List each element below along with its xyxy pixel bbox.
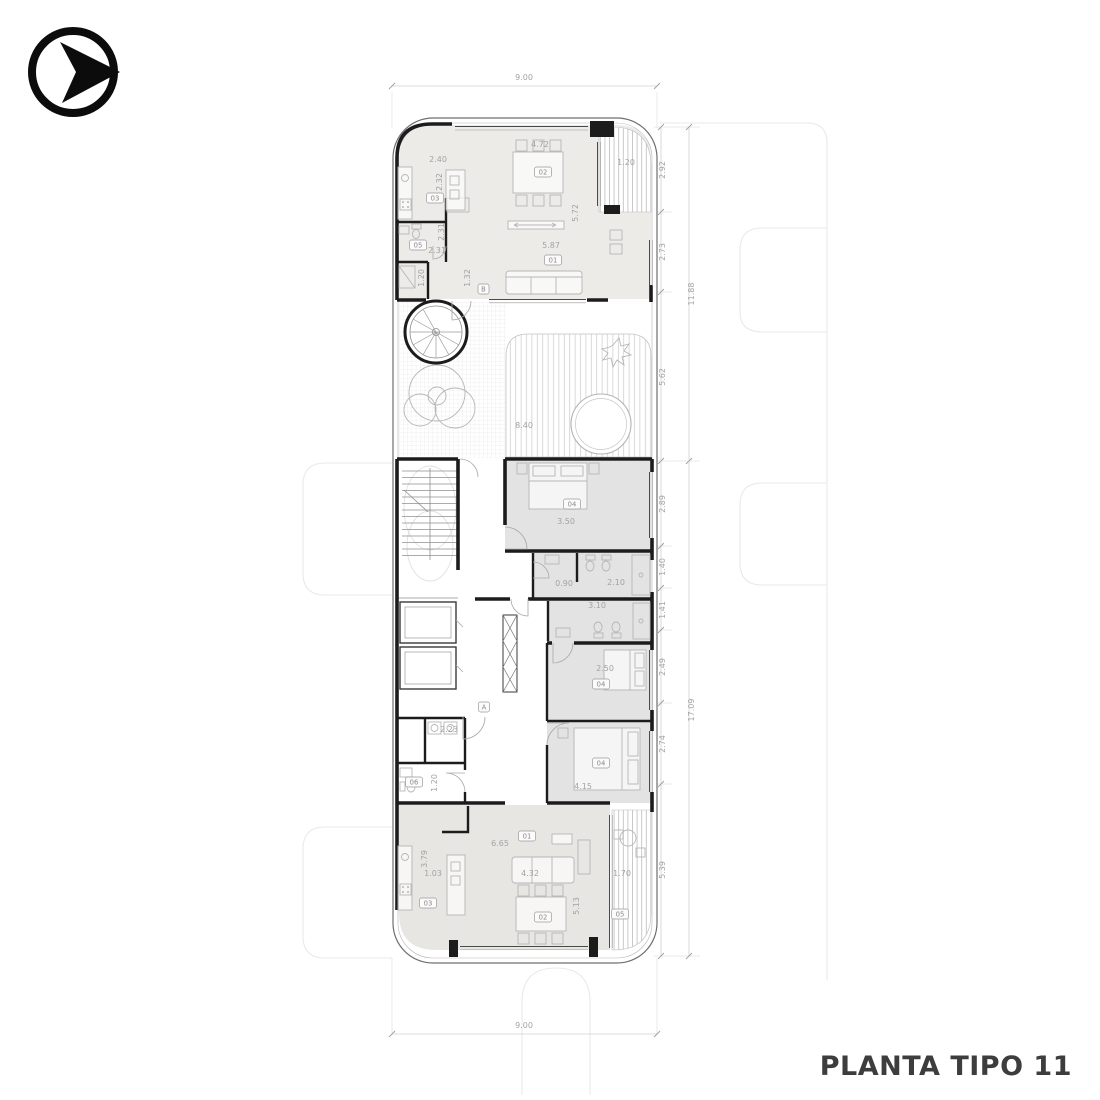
dimension-chain-right-lower: 2.89 1.40 1.41 2.49 2.74 5.39 17.09 bbox=[654, 461, 700, 959]
chip-living-top: 01 bbox=[545, 255, 562, 265]
chip-kitchen-top: 03 bbox=[427, 193, 444, 203]
dim-bath1-wc-w: 0.90 bbox=[555, 579, 573, 588]
dim-right-lower-1: 1.40 bbox=[658, 558, 667, 576]
dim-bath-top-d: 2.31 bbox=[437, 223, 446, 241]
dim-lot-top: 9.00 bbox=[515, 73, 533, 82]
dim-right-lower-4: 2.74 bbox=[658, 735, 667, 753]
dim-bath2-w: 3.10 bbox=[588, 601, 606, 610]
dim-dining-bottom-d: 5.13 bbox=[572, 897, 581, 915]
dim-living-bottom-w: 6.65 bbox=[491, 839, 509, 848]
arrow-logo-icon bbox=[32, 31, 120, 113]
chip-dining-top: 02 bbox=[535, 167, 552, 177]
svg-text:04: 04 bbox=[597, 759, 606, 767]
floor-plan-page: 9.00 9.00 2.92 2.73 5.62 11.88 bbox=[0, 0, 1100, 1100]
dim-entry-top-d: 1.20 bbox=[417, 269, 426, 287]
svg-text:B: B bbox=[481, 285, 486, 293]
chip-kitchen-bottom: 03 bbox=[420, 898, 437, 908]
dim-bath-top-w: 2.31 bbox=[428, 246, 446, 255]
dim-bed1-w: 3.50 bbox=[557, 517, 575, 526]
chip-bedroom-3: 04 bbox=[593, 758, 610, 768]
tv-sideboard-top bbox=[508, 221, 564, 229]
chip-ref-a: A bbox=[479, 702, 490, 712]
dim-sofa-bottom-w: 4.32 bbox=[521, 869, 539, 878]
dim-kitchen-bottom-d: 3.79 bbox=[420, 850, 429, 868]
dim-hall-top-d: 1.32 bbox=[463, 269, 472, 287]
dim-living-top-w: 5.87 bbox=[542, 241, 560, 250]
dim-living-top-d: 5.72 bbox=[571, 204, 580, 222]
dimension-chain-right-upper: 2.92 2.73 5.62 11.88 bbox=[654, 124, 700, 464]
dim-right-upper-1: 2.73 bbox=[658, 243, 667, 261]
svg-text:02: 02 bbox=[539, 168, 548, 176]
chip-balcony-bottom: 05 bbox=[612, 909, 629, 919]
dim-bath1-w: 2.10 bbox=[607, 578, 625, 587]
svg-text:05: 05 bbox=[414, 241, 423, 249]
dim-laundry-w: 2.23 bbox=[440, 725, 458, 734]
dim-kitchen-top-d: 2.32 bbox=[435, 173, 444, 191]
dim-right-upper-0: 2.92 bbox=[658, 161, 667, 179]
dim-right-lower-0: 2.89 bbox=[658, 495, 667, 513]
dim-right-lower-2: 1.41 bbox=[658, 601, 667, 619]
svg-text:03: 03 bbox=[431, 194, 440, 202]
chip-toilet: 06 bbox=[406, 777, 423, 787]
dim-right-lower-5: 5.39 bbox=[658, 861, 667, 879]
dim-kitchen-bottom-w: 1.03 bbox=[424, 869, 442, 878]
dim-dining-top-w: 4.72 bbox=[531, 140, 549, 149]
chip-living-bottom: 01 bbox=[519, 831, 536, 841]
chip-dining-bottom: 02 bbox=[535, 912, 552, 922]
svg-text:A: A bbox=[482, 703, 487, 711]
svg-text:05: 05 bbox=[616, 910, 625, 918]
dim-right-lower-3: 2.49 bbox=[658, 658, 667, 676]
dim-kitchen-top-w: 2.40 bbox=[429, 155, 447, 164]
svg-text:06: 06 bbox=[410, 778, 419, 786]
dim-toilet-d: 1.20 bbox=[430, 774, 439, 792]
floor-plan-drawing: 9.00 9.00 2.92 2.73 5.62 11.88 bbox=[0, 0, 1100, 1100]
dim-terrace-width: 8.40 bbox=[515, 421, 533, 430]
chip-bath-top: 05 bbox=[410, 240, 427, 250]
svg-text:04: 04 bbox=[597, 680, 606, 688]
dim-balcony-top-w: 1.20 bbox=[617, 158, 635, 167]
svg-text:04: 04 bbox=[568, 500, 577, 508]
dim-bed3-w: 4.15 bbox=[574, 782, 592, 791]
dim-lot-bottom: 9.00 bbox=[515, 1021, 533, 1030]
dim-bed2-w: 2.50 bbox=[596, 664, 614, 673]
duct-shaft bbox=[503, 615, 517, 692]
dim-balcony-bottom-w: 1.70 bbox=[613, 869, 631, 878]
chip-ref-b: B bbox=[478, 284, 489, 294]
plan-title: PLANTA TIPO 11 bbox=[820, 1051, 1072, 1082]
svg-text:01: 01 bbox=[523, 832, 532, 840]
dim-right-upper-total: 11.88 bbox=[687, 283, 696, 306]
svg-text:03: 03 bbox=[424, 899, 433, 907]
dim-right-lower-total: 17.09 bbox=[687, 699, 696, 722]
svg-text:02: 02 bbox=[539, 913, 548, 921]
hot-tub bbox=[571, 394, 631, 454]
dim-right-upper-2: 5.62 bbox=[658, 368, 667, 386]
spiral-stair bbox=[405, 301, 467, 363]
chip-bedroom-1: 04 bbox=[564, 499, 581, 509]
bed-1 bbox=[517, 463, 599, 509]
dimension-bottom: 9.00 bbox=[389, 958, 660, 1037]
chip-bedroom-2: 04 bbox=[593, 679, 610, 689]
svg-text:01: 01 bbox=[549, 256, 558, 264]
